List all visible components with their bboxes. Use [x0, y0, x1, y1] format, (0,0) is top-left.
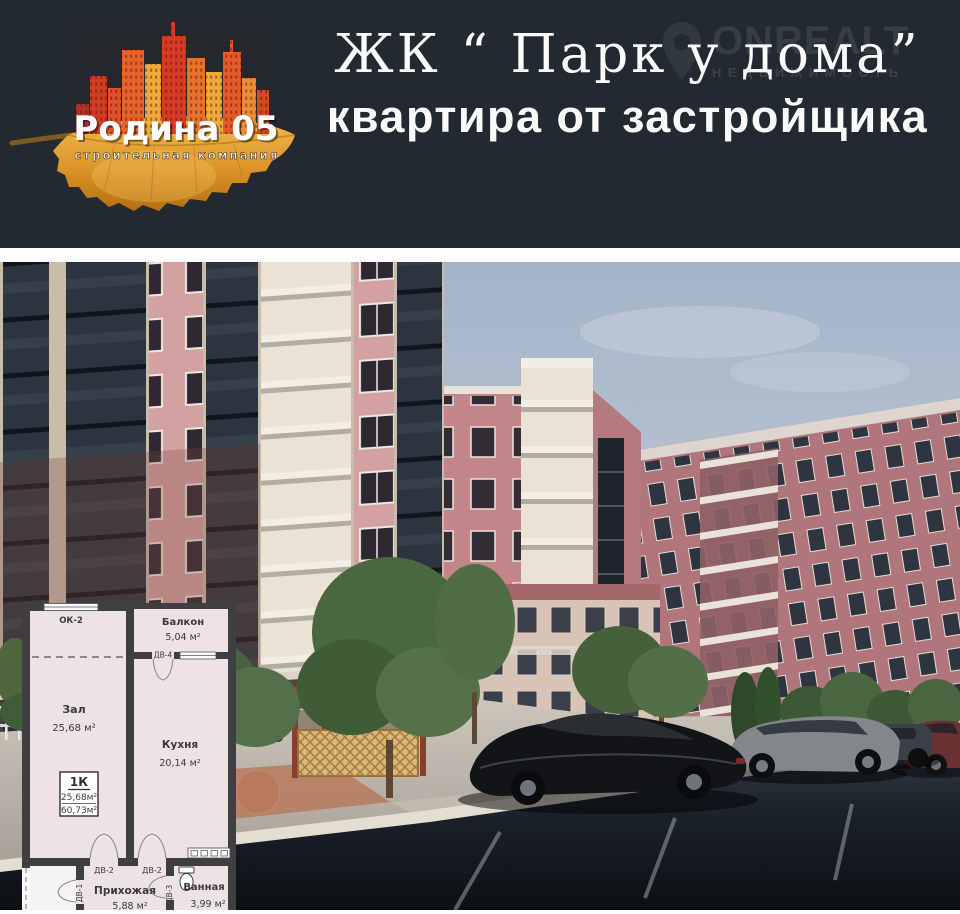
room-living	[30, 611, 126, 858]
hallway-label: Прихожая	[94, 885, 156, 897]
door4-label: ДВ-4	[154, 651, 173, 660]
kitchen-area: 20,14 м²	[159, 758, 200, 769]
bathroom-label: Ванная	[183, 882, 224, 893]
balcony-label: Балкон	[162, 617, 204, 628]
door1-label: ДВ-1	[75, 884, 84, 903]
header-banner: ONREALT НЕДВИЖИМОСТЬ ЖК “ Парк у дома” к…	[0, 0, 960, 248]
window-label: ОК-2	[59, 616, 83, 626]
door3-label: ДВ-3	[165, 885, 174, 904]
door2a-label: ДВ-2	[94, 866, 114, 875]
real-estate-ad: { "header": { "logo": { "title": "Родина…	[0, 0, 960, 910]
living-label: Зал	[62, 703, 85, 716]
floor-plan-drawing: 1К 25,68м² 60,73м² ОК-2 Балкон 5,04 м² Д…	[20, 598, 260, 910]
apartment-type: 1К	[70, 775, 88, 789]
balcony-area: 5,04 м²	[165, 632, 200, 643]
divider-strip	[0, 248, 960, 262]
bathroom-area: 3,99 м²	[190, 899, 225, 910]
kitchen-strip	[188, 848, 230, 858]
title-block: ЖК “ Парк у дома” квартира от застройщик…	[300, 22, 955, 144]
total-area-value: 60,73м²	[61, 806, 98, 816]
offer-subtitle: квартира от застройщика	[300, 90, 955, 144]
living-area: 25,68 м²	[52, 723, 95, 734]
company-logo: Родина 05 Родина 05 строительная компани…	[4, 4, 304, 242]
complex-title: ЖК “ Парк у дома”	[300, 22, 955, 88]
logo-title: Родина 05	[73, 109, 278, 149]
floor-plan: 1К 25,68м² 60,73м² ОК-2 Балкон 5,04 м² Д…	[20, 598, 260, 910]
kitchen-label: Кухня	[162, 739, 198, 751]
apartment-info-box: 1К 25,68м² 60,73м²	[60, 772, 98, 816]
living-area-value: 25,68м²	[61, 793, 98, 803]
logo-subtitle: строительная компания	[74, 148, 279, 162]
door2b-label: ДВ-2	[142, 866, 162, 875]
room-closet	[30, 866, 76, 910]
hallway-area: 5,88 м²	[112, 901, 147, 910]
room-balcony	[134, 609, 228, 652]
